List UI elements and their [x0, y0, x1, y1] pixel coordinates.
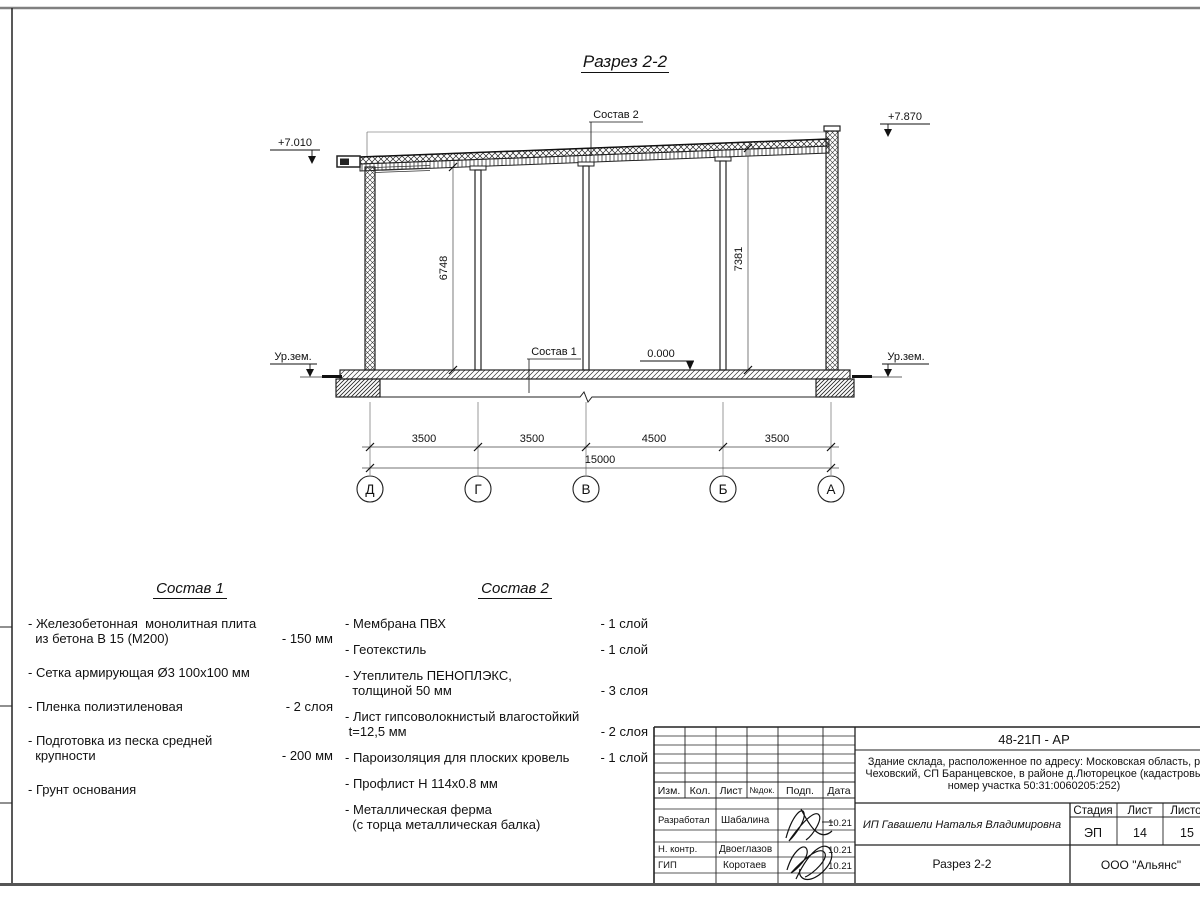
tb-drawing-name: Разрез 2-2 [933, 857, 992, 871]
list-item: - Мембрана ПВХ - 1 слой [345, 616, 648, 631]
span-dim-2: 3500 [520, 433, 544, 445]
tb-name-1: Шабалина [721, 814, 770, 826]
sostav1-callout: Состав 1 [531, 346, 577, 358]
tb-col-ndok: №док. [750, 785, 775, 795]
tb-description-line1: Здание склада, расположенное по адресу: … [868, 756, 1200, 768]
axis-label-d: Д [365, 482, 374, 497]
tb-col-list: Лист [720, 785, 743, 797]
tb-col-data: Дата [827, 785, 850, 797]
column-v [578, 162, 594, 370]
zero-level-mark: 0.000 [640, 348, 694, 370]
zero-level-label: 0.000 [647, 348, 675, 360]
tb-sheet-value: 14 [1133, 826, 1147, 840]
ground-left-label: Ур.зем. [274, 351, 311, 363]
tb-role-3: ГИП [658, 860, 677, 871]
list-item: - Геотекстиль - 1 слой [345, 642, 648, 657]
tb-col-kol: Кол. [690, 785, 711, 797]
tb-role-2: Н. контр. [658, 844, 697, 855]
tb-sheet-label: Лист [1128, 805, 1154, 817]
dim-vertical-right: 7381 [733, 144, 752, 374]
ground-mark-left: Ур.зем. [270, 351, 317, 377]
tb-description-line2: Чеховский, СП Баранцевское, в районе д.Л… [865, 768, 1200, 780]
tb-date-3: 10.21 [828, 861, 852, 872]
tb-project-code: 48-21П - АР [998, 732, 1070, 747]
span-dim-1: 3500 [412, 433, 436, 445]
sostav2-title: Состав 2 [445, 580, 585, 597]
span-dim-3: 4500 [642, 433, 666, 445]
signatures [786, 809, 833, 879]
total-dim: 15000 [585, 454, 616, 466]
sostav1-list: - Железобетонная монолитная плита из бет… [28, 616, 333, 816]
tb-col-izm: Изм. [658, 785, 681, 797]
signature-2 [787, 846, 832, 879]
elevation-right-label: +7.870 [888, 111, 922, 123]
sheet-title: Разрез 2-2 [530, 52, 720, 72]
tb-stage-value: ЭП [1084, 826, 1102, 840]
tb-company: ООО "Альянс" [1101, 858, 1181, 872]
axis-label-b: Б [719, 482, 728, 497]
tb-name-3: Коротаев [723, 860, 766, 871]
axis-bubbles: Д Г В Б А [357, 476, 844, 502]
tb-date-1: 10.21 [828, 818, 852, 829]
list-item: - Грунт основания [28, 782, 333, 797]
tb-sheets-label: Листов [1170, 805, 1200, 817]
titleblock-text: Изм. Кол. Лист №док. Подп. Дата Разработ… [658, 732, 1200, 872]
sostav1-title: Состав 1 [120, 580, 260, 597]
tb-sheets-value: 15 [1180, 826, 1194, 840]
span-dim-4: 3500 [765, 433, 789, 445]
list-item: - Металлическая ферма (с торца металличе… [345, 802, 648, 832]
parapet-cap [824, 126, 840, 131]
drawing-sheet: +7.010 +7.870 Состав 2 Состав 1 0.000 Ур… [0, 0, 1200, 900]
dim-vertical-left: 6748 [438, 163, 457, 374]
list-item: - Подготовка из песка средней крупности … [28, 733, 333, 763]
sostav2-list: - Мембрана ПВХ - 1 слой - Геотекстиль - … [345, 616, 648, 843]
dimension-chain: 3500 3500 4500 3500 15000 [362, 402, 839, 475]
tb-col-podp: Подп. [786, 785, 814, 797]
list-item: - Сетка армирующая Ø3 100х100 мм [28, 665, 333, 680]
tb-client: ИП Гавашели Наталья Владимировна [863, 819, 1061, 831]
elevation-mark-right: +7.870 [880, 111, 930, 137]
ground-right-label: Ур.зем. [887, 351, 924, 363]
elevation-left-label: +7.010 [278, 137, 312, 149]
tb-stage-label: Стадия [1073, 805, 1112, 817]
floor-slab [340, 370, 850, 379]
column-g [470, 166, 486, 370]
list-item: - Лист гипсоволокнистый влагостойкий t=1… [345, 709, 648, 739]
ground-mark-right: Ур.зем. [882, 351, 929, 377]
tb-name-2: Двоеглазов [719, 844, 772, 855]
right-wall [824, 126, 840, 370]
dim-right-label: 7381 [733, 247, 745, 271]
tb-description-line3: номер участка 50:31:0060205:252) [948, 780, 1120, 792]
elevation-mark-left: +7.010 [270, 137, 320, 164]
sostav2-callout: Состав 2 [593, 109, 639, 121]
axis-label-g: Г [474, 482, 482, 497]
left-wall [365, 167, 375, 370]
list-item: - Профлист Н 114х0.8 мм [345, 776, 648, 791]
axis-label-a: А [826, 482, 835, 497]
list-item: - Пароизоляция для плоских кровель - 1 с… [345, 750, 648, 765]
dim-left-label: 6748 [438, 256, 450, 280]
list-item: - Утеплитель ПЕНОПЛЭКС, толщиной 50 мм -… [345, 668, 648, 698]
signature-1 [786, 809, 832, 841]
column-b [715, 157, 731, 370]
tb-role-1: Разработал [658, 815, 710, 826]
axis-label-v: В [581, 482, 590, 497]
foundation [336, 379, 854, 402]
list-item: - Пленка полиэтиленовая - 2 слоя [28, 699, 333, 714]
list-item: - Железобетонная монолитная плита из бет… [28, 616, 333, 646]
